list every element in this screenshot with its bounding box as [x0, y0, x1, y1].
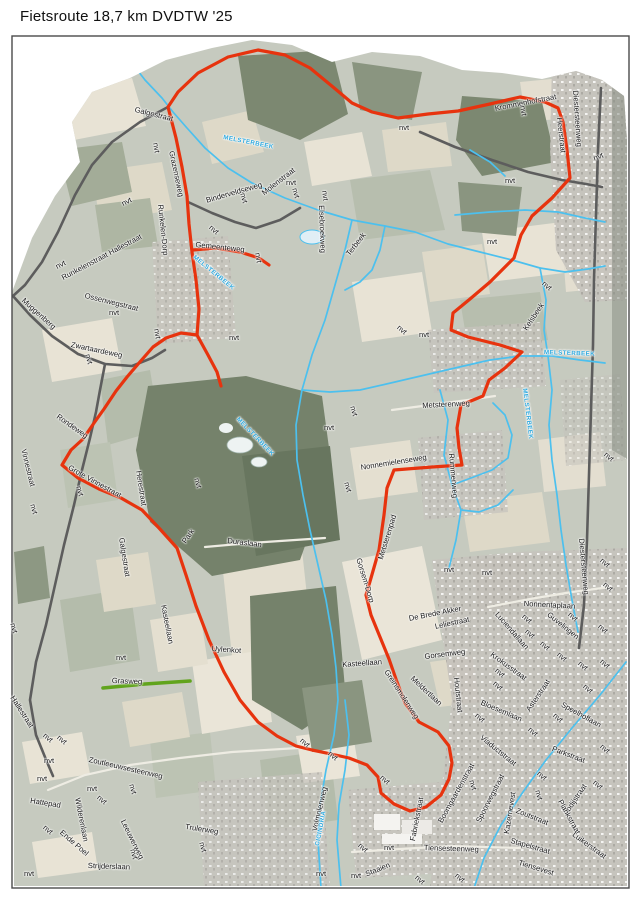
map-document: Fietsroute 18,7 km DVDTW '25 — [0, 0, 636, 900]
basemap-svg — [0, 0, 636, 900]
map-canvas: GalgestraatGrazensewegBinderveldsewegMol… — [0, 0, 636, 900]
